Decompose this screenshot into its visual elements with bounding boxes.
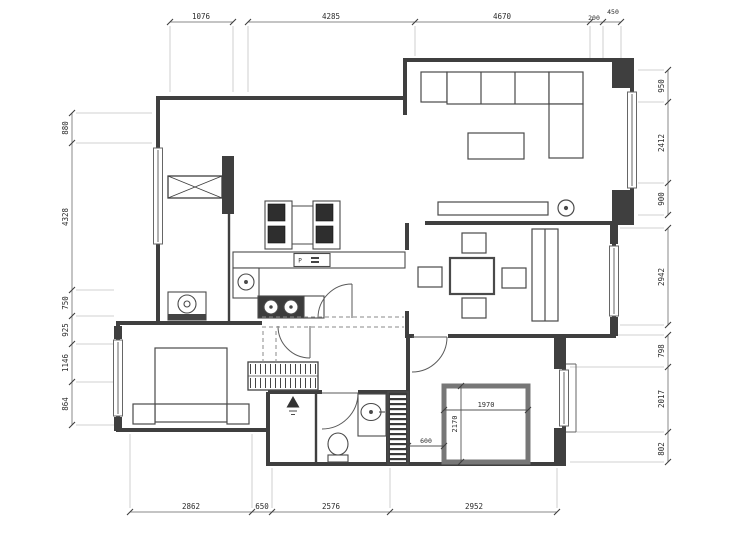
floor-lamp [558, 200, 574, 216]
kitchen-cabinet [304, 296, 324, 318]
window-bedroom2-right [560, 364, 577, 432]
dim-right-2: 2412 [657, 134, 666, 152]
dining-chairs [268, 204, 333, 243]
kitchen-sink-cabinet [233, 268, 259, 298]
dim-top-5: 450 [607, 8, 619, 16]
dim-bed-depth: 2170 [451, 416, 459, 433]
dim-left-2: 4328 [61, 207, 70, 226]
toilet [328, 433, 348, 462]
nightstand-left [133, 404, 155, 424]
dim-right-7: 802 [657, 442, 666, 456]
bathroom [287, 392, 409, 464]
nightstand-right [227, 404, 249, 424]
kitchen [168, 252, 405, 320]
dim-right-1: 950 [657, 79, 666, 93]
dining-set [265, 201, 340, 249]
dim-left-5: 1146 [61, 353, 70, 372]
dim-bed-width: 1970 [478, 401, 495, 409]
floor-plan: 1076 4285 4670 200 450 880 4328 750 925 … [0, 0, 740, 555]
dim-right-6: 2017 [657, 390, 666, 408]
dim-top-4: 200 [588, 14, 600, 22]
stove [258, 296, 304, 318]
dim-bottom-2: 650 [255, 502, 269, 511]
window-entry-left [154, 148, 163, 244]
dim-left-1: 880 [61, 121, 70, 135]
square-table [450, 258, 494, 294]
dim-right-4: 2942 [657, 268, 666, 286]
window-bedroom1-left [114, 340, 123, 416]
washing-machine [168, 292, 206, 320]
window-sitting-right [610, 246, 619, 316]
wardrobe-hangers [248, 362, 318, 390]
dim-left-3: 750 [61, 296, 70, 310]
shaft-x-box [168, 176, 222, 198]
kitchen-appliance-label: P [298, 258, 302, 265]
bed2-dimensions [405, 383, 531, 465]
tall-cabinet [532, 229, 558, 321]
dim-bottom-3: 2576 [322, 502, 341, 511]
dim-right-3: 900 [657, 192, 666, 206]
bed1 [155, 348, 227, 422]
bedroom2-door [412, 337, 447, 372]
bathroom-sink [358, 394, 386, 436]
bedroom2-furniture [405, 383, 531, 465]
dim-top-3: 4670 [493, 12, 512, 21]
floor-plan-drawing: 1076 4285 4670 200 450 880 4328 750 925 … [0, 0, 740, 555]
dim-right-5: 798 [657, 344, 666, 358]
hall-dashed-lines [262, 317, 404, 364]
window-living-right [628, 92, 637, 188]
bedroom1-door [278, 326, 310, 358]
sitting-room [418, 229, 558, 321]
dim-bed-offset: 600 [420, 437, 432, 445]
dim-bottom-4: 2952 [465, 502, 483, 511]
dim-top-1: 1076 [192, 12, 211, 21]
tv-console [438, 202, 548, 215]
dim-left-4: 925 [61, 323, 70, 337]
shaft-hatched [388, 392, 408, 464]
bathroom-door [322, 393, 358, 429]
dim-bottom-1: 2862 [182, 502, 200, 511]
bedroom1-furniture [133, 348, 318, 424]
living-room-furniture [421, 72, 583, 216]
dim-top-2: 4285 [322, 12, 340, 21]
coffee-table [468, 133, 524, 159]
shower-symbol [287, 396, 300, 415]
dim-left-6: 864 [61, 397, 70, 411]
